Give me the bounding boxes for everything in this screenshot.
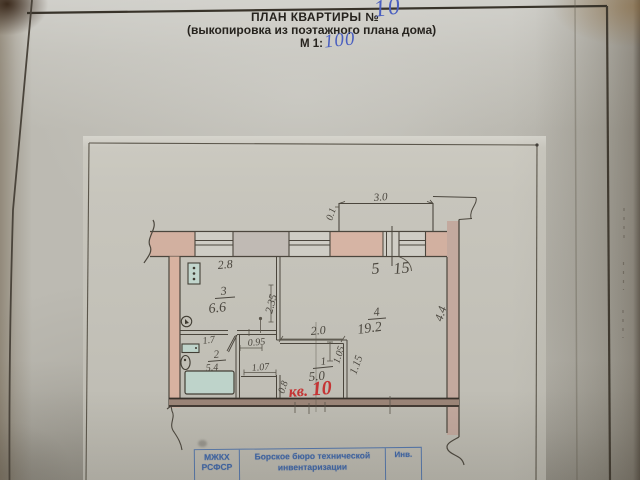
svg-text:1: 1: [320, 355, 327, 368]
svg-text:2.0: 2.0: [310, 323, 326, 338]
svg-text:6.6: 6.6: [208, 300, 227, 317]
svg-text:3.0: 3.0: [372, 191, 388, 204]
svg-text:19.2: 19.2: [356, 320, 382, 338]
svg-text:2.8: 2.8: [217, 257, 233, 272]
svg-text:1.7: 1.7: [202, 334, 217, 347]
svg-text:2: 2: [213, 348, 220, 361]
svg-text:1.15: 1.15: [348, 353, 366, 376]
svg-text:15: 15: [393, 259, 411, 278]
svg-text:5.4: 5.4: [205, 362, 218, 374]
svg-text:0.95: 0.95: [247, 337, 265, 349]
svg-text:0.1: 0.1: [324, 207, 338, 222]
svg-text:1.05: 1.05: [331, 345, 347, 365]
svg-text:1.07: 1.07: [251, 361, 270, 374]
svg-text:4: 4: [373, 304, 380, 319]
svg-text:2.35: 2.35: [263, 293, 280, 315]
svg-text:5: 5: [371, 260, 381, 278]
svg-text:3: 3: [219, 283, 227, 298]
